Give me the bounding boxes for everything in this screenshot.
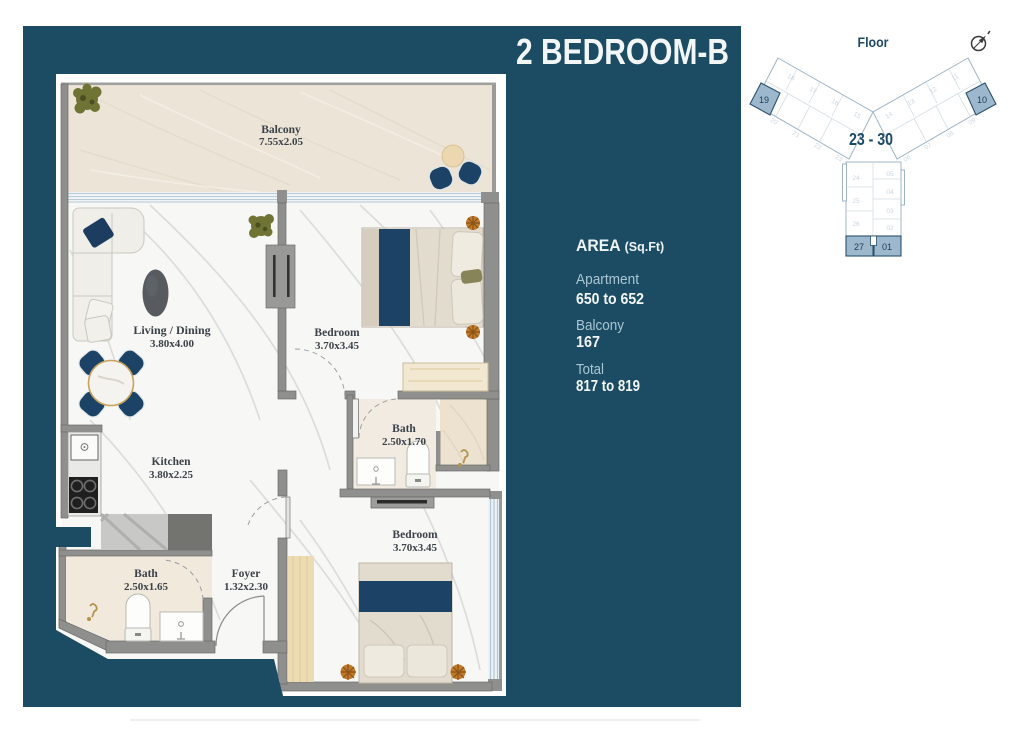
svg-text:2 BEDROOM-B: 2 BEDROOM-B: [516, 31, 729, 72]
svg-text:Apartment: Apartment: [576, 272, 639, 288]
svg-text:Floor: Floor: [858, 35, 890, 50]
svg-text:19: 19: [759, 95, 769, 105]
svg-text:Kitchen: Kitchen: [152, 456, 192, 468]
svg-text:650 to 652: 650 to 652: [576, 291, 644, 308]
svg-text:Balcony: Balcony: [261, 124, 301, 136]
svg-text:3.80x2.25: 3.80x2.25: [149, 469, 194, 481]
svg-text:24: 24: [852, 175, 860, 182]
svg-text:167: 167: [576, 334, 600, 351]
svg-text:2.50x1.70: 2.50x1.70: [382, 436, 427, 448]
svg-text:10: 10: [977, 95, 987, 105]
svg-text:01: 01: [882, 242, 892, 252]
svg-text:Foyer: Foyer: [232, 568, 261, 580]
svg-text:03: 03: [886, 208, 894, 215]
svg-text:26: 26: [852, 221, 860, 228]
svg-text:Bedroom: Bedroom: [314, 327, 360, 339]
svg-text:7.55x2.05: 7.55x2.05: [259, 136, 304, 148]
svg-text:AREA (Sq.Ft): AREA (Sq.Ft): [576, 237, 664, 255]
svg-text:05: 05: [886, 171, 894, 178]
svg-text:25: 25: [852, 198, 860, 205]
svg-text:Bedroom: Bedroom: [392, 529, 438, 541]
svg-text:Bath: Bath: [392, 423, 416, 435]
svg-text:Total: Total: [576, 362, 604, 378]
svg-text:2.50x1.65: 2.50x1.65: [124, 581, 169, 593]
svg-text:Bath: Bath: [134, 568, 158, 580]
svg-text:3.80x4.00: 3.80x4.00: [150, 338, 195, 350]
svg-text:04: 04: [886, 189, 894, 196]
svg-text:23 - 30: 23 - 30: [849, 129, 893, 149]
svg-text:3.70x3.45: 3.70x3.45: [393, 542, 438, 554]
svg-text:02: 02: [886, 225, 894, 232]
svg-text:1.32x2.30: 1.32x2.30: [224, 581, 269, 593]
svg-text:817 to 819: 817 to 819: [576, 378, 640, 395]
svg-text:Balcony: Balcony: [576, 318, 625, 334]
svg-text:Living / Dining: Living / Dining: [133, 323, 210, 337]
svg-text:3.70x3.45: 3.70x3.45: [315, 340, 360, 352]
svg-text:27: 27: [854, 242, 864, 252]
